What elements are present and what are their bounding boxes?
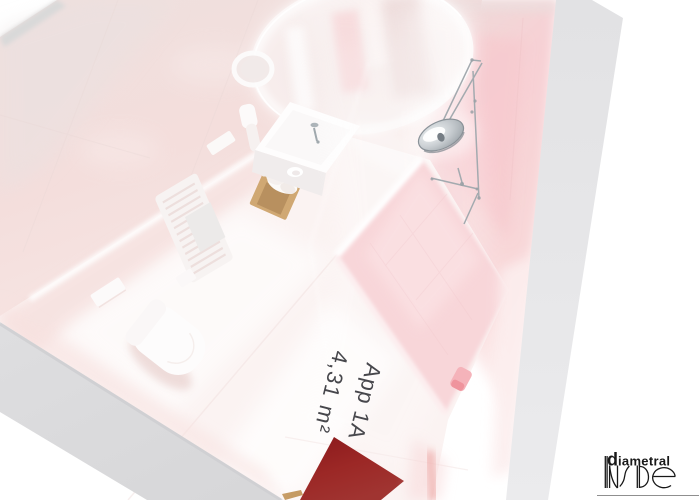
svg-text:d: d xyxy=(607,450,618,470)
svg-text:iametral: iametral xyxy=(618,454,670,469)
